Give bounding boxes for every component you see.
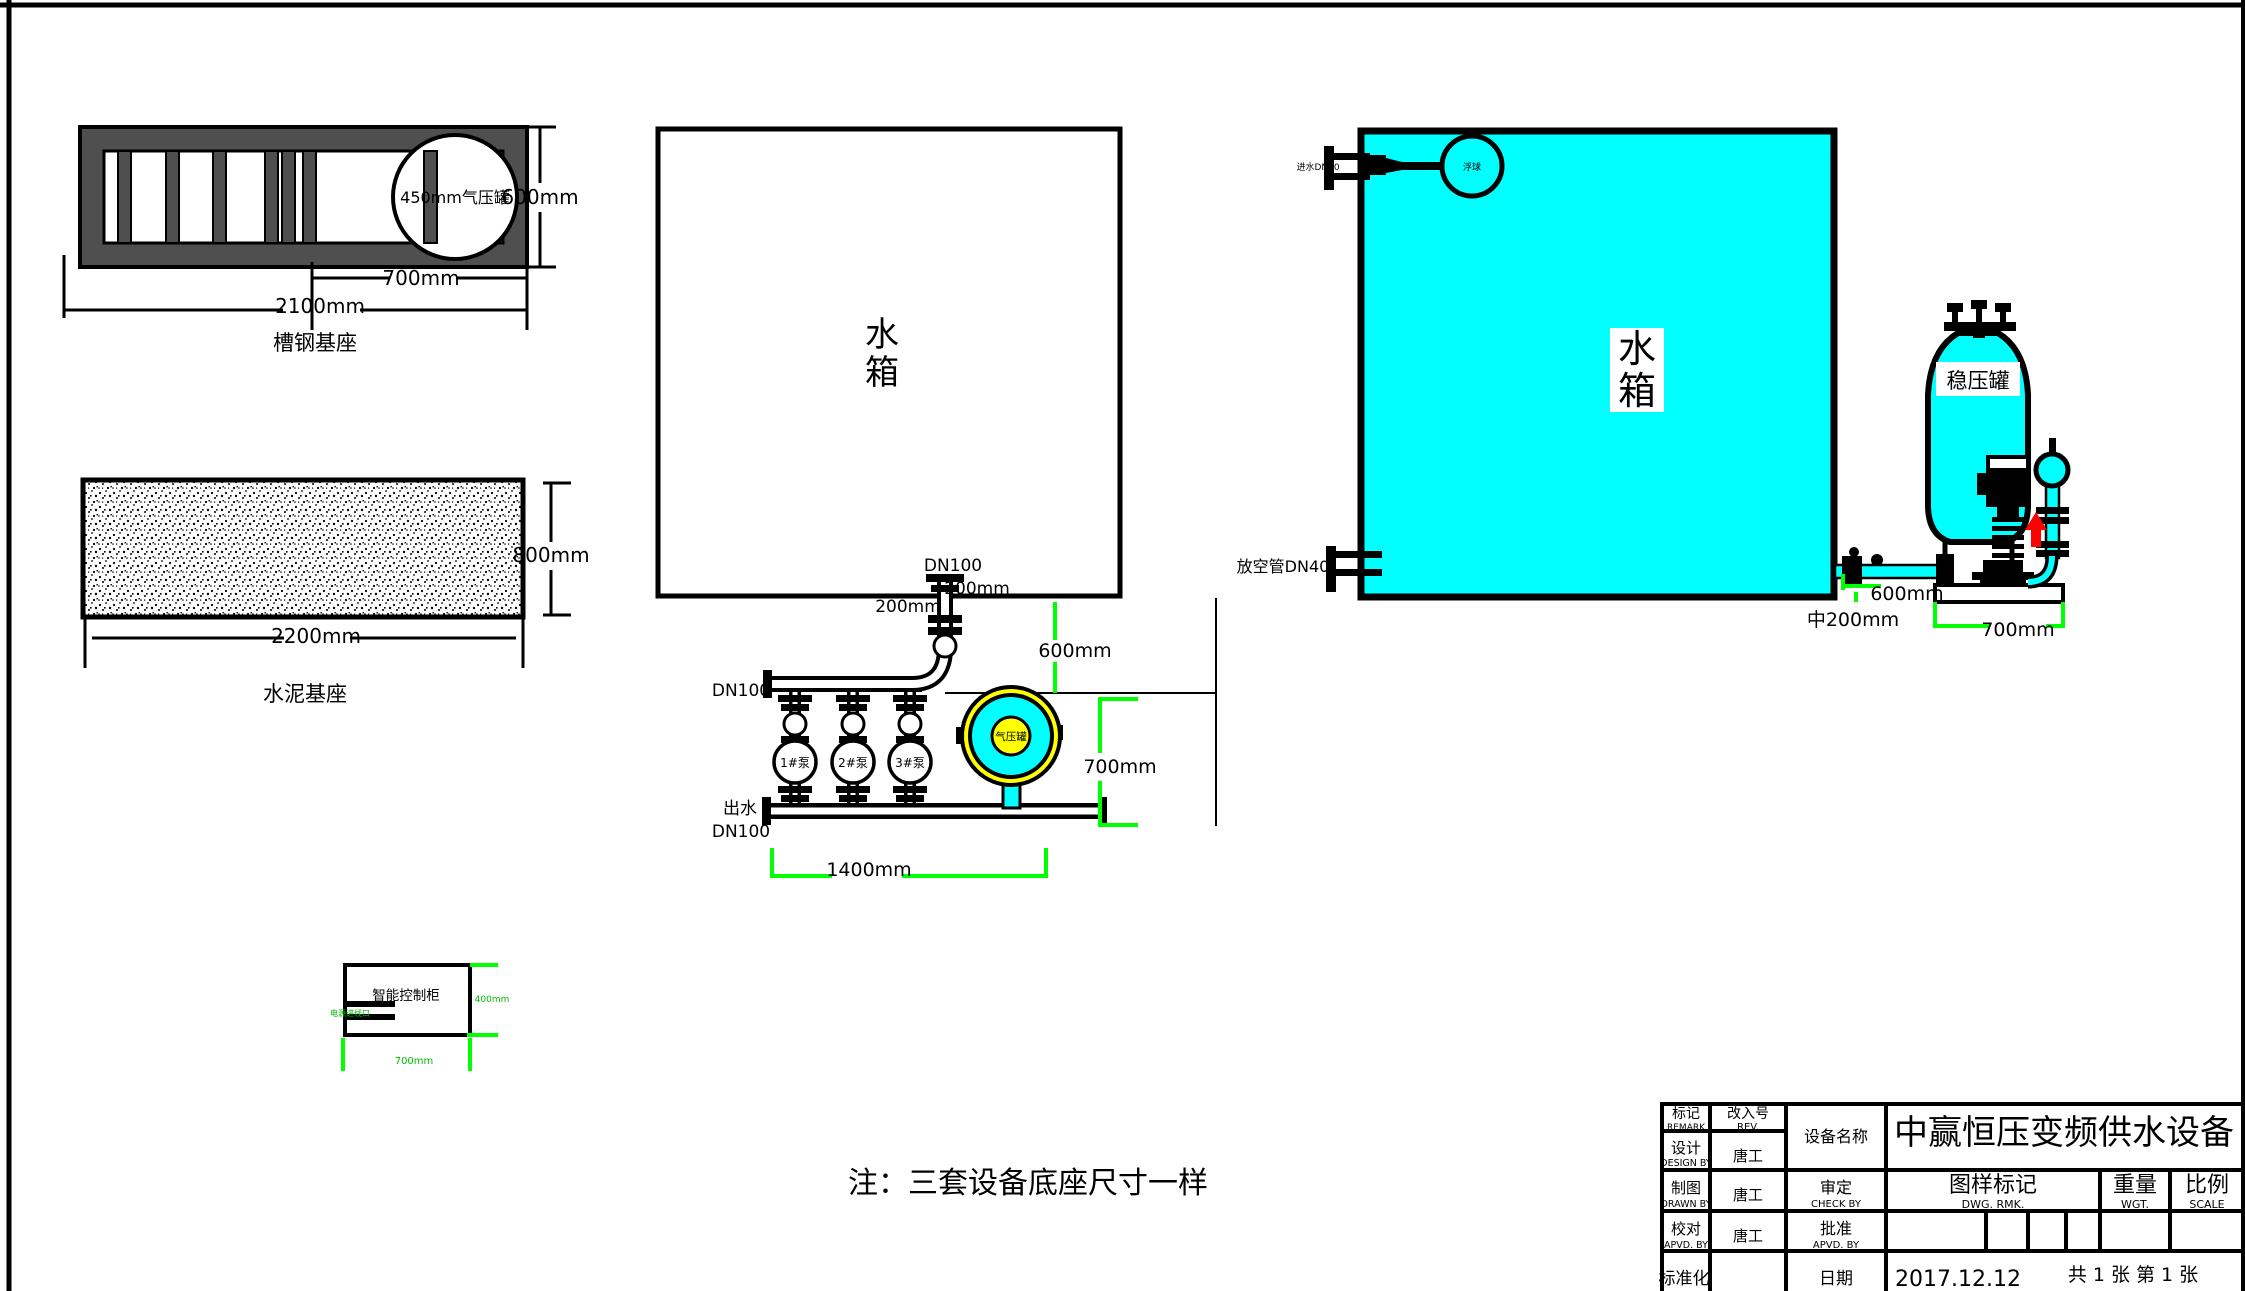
pump-1-label: 1#泵 [780,756,810,770]
pressure-gauge [2036,454,2068,486]
plan-view: 水 箱 [658,129,1216,881]
tb-design-cn: 设计 [1671,1139,1701,1157]
plan-tank-label-bottom: 箱 [865,353,899,393]
cabinet-dim-height-text: 400mm [475,995,510,1005]
plan-offset-left-label: 200mm [875,597,941,617]
elevation-tank-label-top: 水 [1618,327,1656,371]
tb-proof-en: APVD. BY [1664,1240,1708,1251]
steel-base-dim-total-text: 2100mm [275,294,365,318]
cement-base-view: 800mm 2200mm 水泥基座 [83,480,590,706]
plan-offset-right-label: 200mm [944,579,1010,599]
elevation-dim-base-width-text: 700mm [1981,619,2054,641]
steel-base-title: 槽钢基座 [273,331,357,355]
plan-dim-width-text: 1400mm [826,859,911,881]
tb-draw-val: 唐工 [1733,1186,1763,1204]
plan-dim-depth-text: 700mm [1083,756,1156,778]
tb-rev-en: REV. [1737,1122,1759,1133]
plan-outlet-dn-label: DN100 [712,822,770,842]
plan-pressure-tank: 气压罐 [956,687,1063,808]
plan-outlet-label: 出水 [723,799,757,819]
equipment-base-block [1935,585,2063,602]
tb-rev-cn: 改入号 [1727,1106,1769,1122]
tb-draw-en: DRAWN BY [1661,1199,1712,1210]
plan-inlet-dn-label: DN100 [924,556,982,576]
cement-base-dim-width-text: 2200mm [271,624,361,648]
elevation-view: 水 箱 浮球 进水DN50 放空管DN40 [1237,131,2069,641]
tb-check-en: CHECK BY [1811,1199,1862,1210]
cement-base-title: 水泥基座 [263,682,347,706]
tb-date-val: 2017.12.12 [1895,1267,2021,1291]
tb-equip-name-label: 设备名称 [1804,1127,1868,1146]
tb-proof-cn: 校对 [1671,1220,1701,1238]
control-cabinet-label: 智能控制柜 [372,988,440,1004]
tb-scale-en: SCALE [2189,1198,2224,1211]
plan-dim-gap-text: 600mm [1038,640,1111,662]
tb-design-val: 唐工 [1733,1147,1763,1165]
elevation-dim-offset-text: 中200mm [1807,609,1899,631]
cement-base-dim-height-text: 800mm [512,543,589,567]
elevation-tank-label-bottom: 箱 [1618,369,1656,413]
pressure-tank-footprint-label: 450mm气压罐 [400,188,510,207]
plan-pressure-tank-label: 气压罐 [995,730,1027,743]
tb-proof-val: 唐工 [1733,1227,1763,1245]
pump-2-label: 2#泵 [838,756,868,770]
tb-date-cn: 日期 [1819,1269,1853,1289]
tb-approve-en: APVD. BY [1813,1240,1860,1251]
tb-wgt-cn: 重量 [2113,1173,2157,1198]
cement-base-body [83,480,523,617]
drawing-note: 注：三套设备底座尺寸一样 [848,1166,1208,1201]
cabinet-dim-width-text: 700mm [395,1056,434,1067]
elevation-inlet-label: 进水DN50 [1296,161,1339,173]
tb-drg-en: DWG. RMK. [1962,1198,2025,1211]
tb-scale-cn: 比例 [2185,1173,2229,1198]
title-block: 标记 REMARK 改入号 REV. 设备名称 中赢恒压变频供水设备 设计 DE… [1659,1102,2245,1291]
drain-pipe-label: 放空管DN40 [1237,557,1330,576]
tb-approve-cn: 批准 [1820,1219,1852,1238]
tb-remark-en: REMARK [1667,1123,1706,1133]
steel-base-dim-right-text: 700mm [382,266,459,290]
tb-draw-cn: 制图 [1671,1179,1701,1197]
steel-channel-base-view: 450mm气压罐 600mm 700mm 2100mm 槽钢基座 [64,127,579,355]
tb-sheet: 共 1 张 第 1 张 [2068,1264,2198,1286]
steel-base-dim-height-text: 600mm [501,185,578,209]
plan-manifold-dn-label: DN100 [712,681,770,701]
tb-wgt-en: WGT. [2121,1198,2149,1211]
pump-3-label: 3#泵 [895,756,925,770]
tb-title: 中赢恒压变频供水设备 [1894,1113,2234,1153]
elevation-suction-pipe [1835,547,1954,588]
elevation-dim-gap-text: 600mm [1870,583,1943,605]
tb-check-cn: 审定 [1820,1178,1852,1197]
drawing-canvas: 450mm气压罐 600mm 700mm 2100mm 槽钢基座 [0,0,2245,1291]
plan-tank-label-top: 水 [865,315,899,355]
tb-remark-cn: 标记 [1672,1106,1700,1122]
control-cabinet-view: 智能控制柜 电源进线口 400mm 700mm [330,965,509,1071]
cad-drawing-sheet: 450mm气压罐 600mm 700mm 2100mm 槽钢基座 [0,0,2245,1291]
tb-std-cn: 标准化 [1659,1269,1710,1289]
tb-drg-cn: 图样标记 [1949,1173,2037,1198]
cabinet-inlet-note: 电源进线口 [330,1008,370,1018]
stabilizing-tank: 稳压罐 [1928,300,2028,585]
float-ball-label: 浮球 [1463,161,1481,173]
gauge-discharge-pipe [2028,438,2069,582]
tb-design-en: DESIGN BY [1660,1158,1712,1169]
stab-tank-label: 稳压罐 [1947,369,2010,393]
elevation-water-tank [1361,131,1834,597]
